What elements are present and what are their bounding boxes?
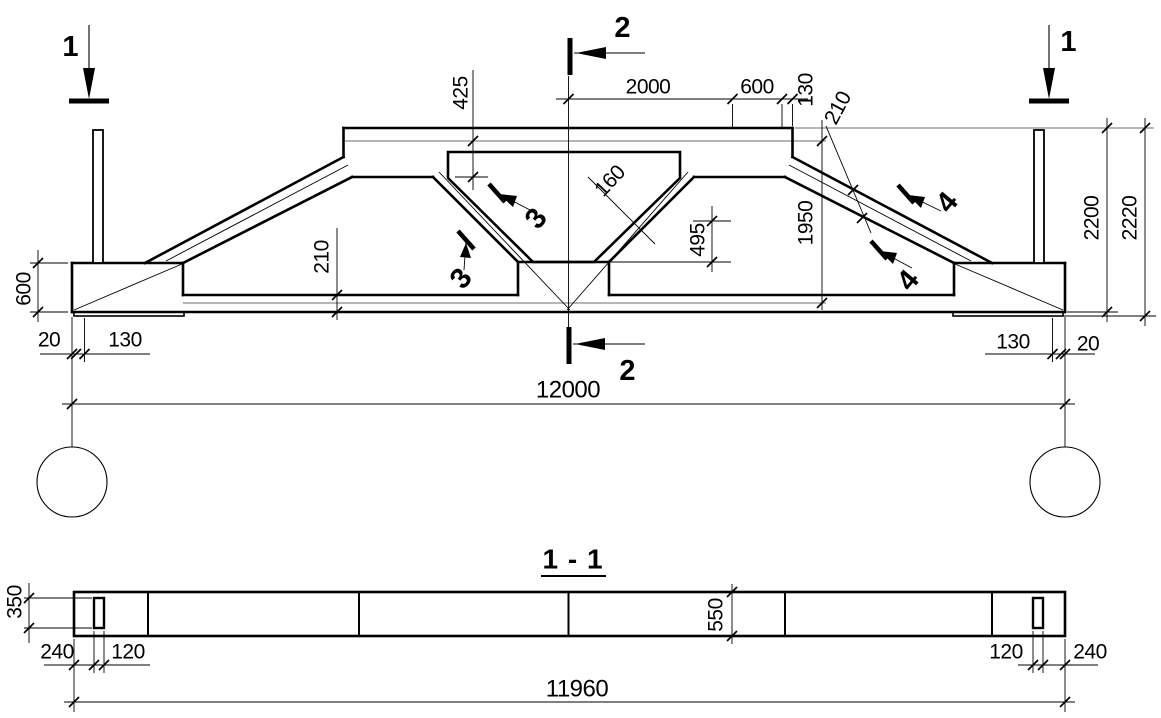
right-block-diagonal	[955, 264, 1063, 310]
dim-2220-label: 2220	[1119, 196, 1142, 241]
drawing-sheet: 1 1 2 2 3	[0, 0, 1161, 718]
dim-1950-label: 1950	[795, 201, 818, 246]
dim-11960-label: 11960	[546, 676, 609, 703]
elevation-view: 1 1 2 2 3	[13, 12, 1157, 517]
dim-160-label: 160	[590, 161, 630, 201]
section-mark-4-lower: 4	[871, 241, 926, 297]
section-4-upper-label: 4	[930, 186, 965, 219]
dim-120-right-label: 120	[989, 641, 1023, 664]
section-1-1-view: 1 - 1	[4, 544, 1107, 713]
left-bearing-plate	[74, 312, 184, 316]
dim-120-left-label: 120	[111, 641, 145, 664]
left-block-diagonal	[74, 264, 182, 310]
dim-600-top-label: 600	[740, 76, 774, 99]
dim-20-right-label: 20	[1077, 333, 1099, 356]
dim-2200-label: 2200	[1081, 196, 1104, 241]
dim-240-left-label: 240	[40, 641, 74, 664]
section-mark-1-right: 1	[1029, 25, 1076, 101]
right-bearing-plate	[953, 312, 1063, 316]
left-anchor-hole	[94, 598, 104, 628]
left-diagonal-axis	[439, 172, 570, 310]
dim-425-label: 425	[450, 76, 473, 110]
section-3-upper-label: 3	[519, 202, 554, 235]
section-2-top-arrow-icon	[576, 47, 606, 59]
dim-2000-label: 2000	[626, 76, 671, 99]
section-1-right-arrow-icon	[1043, 68, 1055, 99]
dim-130-left-label: 130	[108, 329, 142, 352]
center-opening	[448, 152, 680, 262]
section-mark-3-lower: 3	[444, 231, 479, 295]
dim-600-left-label: 600	[13, 272, 36, 306]
section-4-lower-arrow-icon	[880, 251, 897, 264]
section-mark-1-left: 1	[62, 25, 109, 101]
right-anchor-post	[1034, 130, 1044, 263]
section-2-bottom-label: 2	[619, 355, 634, 387]
left-axis-circle	[37, 447, 107, 517]
dim-210-slope-label: 210	[820, 88, 856, 128]
section-1-1-title: 1 - 1	[542, 544, 603, 575]
section-1-left-arrow-icon	[83, 68, 95, 99]
right-diagonal-axis	[567, 172, 688, 310]
section-mark-4-upper: 4	[898, 185, 965, 219]
right-axis-circle	[1030, 447, 1100, 517]
right-anchor-hole	[1033, 598, 1043, 628]
dim-130-top-label: 130	[795, 73, 818, 107]
dim-12000-label: 12000	[536, 377, 600, 404]
dim-495-label: 495	[687, 223, 710, 257]
section-3-lower-label: 3	[444, 262, 479, 295]
axis-lines-gray	[183, 128, 1154, 303]
section-2-bottom-arrow-icon	[575, 338, 605, 350]
dim-210-chord-label: 210	[311, 240, 334, 274]
section-1-right-label: 1	[1060, 26, 1076, 58]
section-1-left-label: 1	[62, 31, 78, 63]
dim-350-label: 350	[4, 585, 27, 619]
axis-markers	[37, 447, 1100, 517]
dim-130-right-label: 130	[996, 331, 1030, 354]
left-anchor-post	[93, 130, 103, 263]
elevation-dimension-labels: 2000 600 130 425 495 160 210 1950 2200 2…	[13, 73, 1142, 403]
right-diagonal-outer	[609, 177, 694, 262]
left-diagonal-outer	[433, 177, 518, 262]
section-2-top-label: 2	[614, 12, 629, 44]
technical-drawing-canvas: 1 1 2 2 3	[0, 0, 1161, 718]
section-mark-2-top: 2	[570, 12, 645, 75]
dim-550-label: 550	[705, 598, 728, 632]
dim-20-left-label: 20	[38, 329, 60, 352]
dim-240-right-label: 240	[1073, 641, 1107, 664]
section-4-lower-label: 4	[891, 264, 926, 297]
